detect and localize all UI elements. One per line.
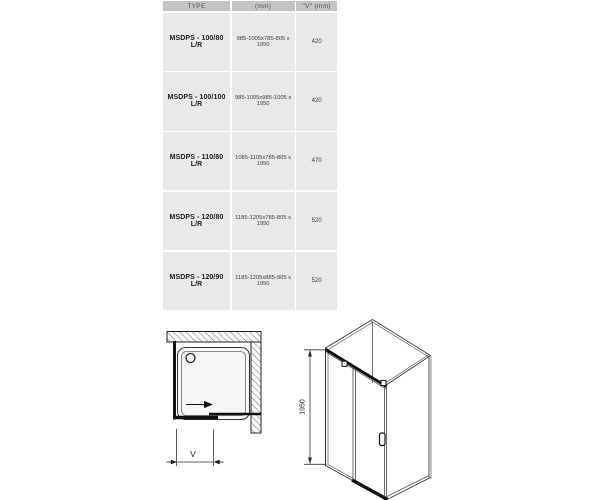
catalog-page: TYPE (mm) "V" (mm) MSDPS - 100/80 L/R 98… — [0, 0, 600, 500]
3d-roller-left — [342, 361, 347, 366]
3d-bottom-front-left-inner — [328, 465, 354, 479]
plan-drain-circle — [186, 354, 195, 363]
col-header-mm: (mm) — [232, 1, 295, 11]
col-header-v: "V" (mm) — [296, 1, 337, 11]
plan-wall-right — [251, 342, 261, 433]
row1-v-value: 420 — [296, 13, 337, 71]
row3-type: MSDPS - 110/80 L/R — [163, 132, 230, 190]
3d-dimension-height-label: 1950 — [300, 399, 307, 415]
3d-top-face — [326, 320, 431, 386]
row2-v-value: 420 — [296, 72, 337, 130]
3d-door-handle — [380, 433, 386, 446]
row2-type: MSDPS - 100/100 L/R — [163, 72, 230, 130]
row3-v-value: 470 — [296, 132, 337, 190]
row5-v-value: 520 — [296, 252, 337, 310]
3d-bottom-right-inner — [387, 476, 429, 497]
row2-dimensions: 985-1005x985-1005 x 1950 — [232, 72, 295, 130]
plan-dimension-v: V — [167, 429, 224, 466]
row1-dimensions: 985-1005x785-805 x 1950 — [232, 13, 295, 71]
3d-roller-right — [381, 380, 386, 385]
row1-type: MSDPS - 100/80 L/R — [163, 13, 230, 71]
row3-dimensions: 1085-1105x785-805 x 1950 — [232, 132, 295, 190]
row4-type: MSDPS - 120/80 L/R — [163, 192, 230, 250]
row4-dimensions: 1185-1205x785-805 x 1950 — [232, 192, 295, 250]
perspective-view-drawing: 1950 — [300, 320, 432, 500]
technical-drawings: V — [140, 310, 450, 500]
plan-dimension-v-label: V — [190, 449, 196, 459]
3d-bottom-front-left — [326, 466, 354, 482]
3d-bottom-rail — [352, 480, 388, 500]
3d-bottom-right — [387, 478, 431, 500]
3d-dimension-height: 1950 — [300, 350, 327, 465]
col-header-type: TYPE — [163, 1, 230, 11]
plan-view-drawing: V — [167, 332, 262, 467]
plan-wall-top — [167, 332, 261, 343]
row5-dimensions: 1185-1205x885-905 x 1950 — [232, 252, 295, 310]
row5-type: MSDPS - 120/90 L/R — [163, 252, 230, 310]
spec-table: TYPE (mm) "V" (mm) MSDPS - 100/80 L/R 98… — [163, 1, 337, 310]
row4-v-value: 520 — [296, 192, 337, 250]
